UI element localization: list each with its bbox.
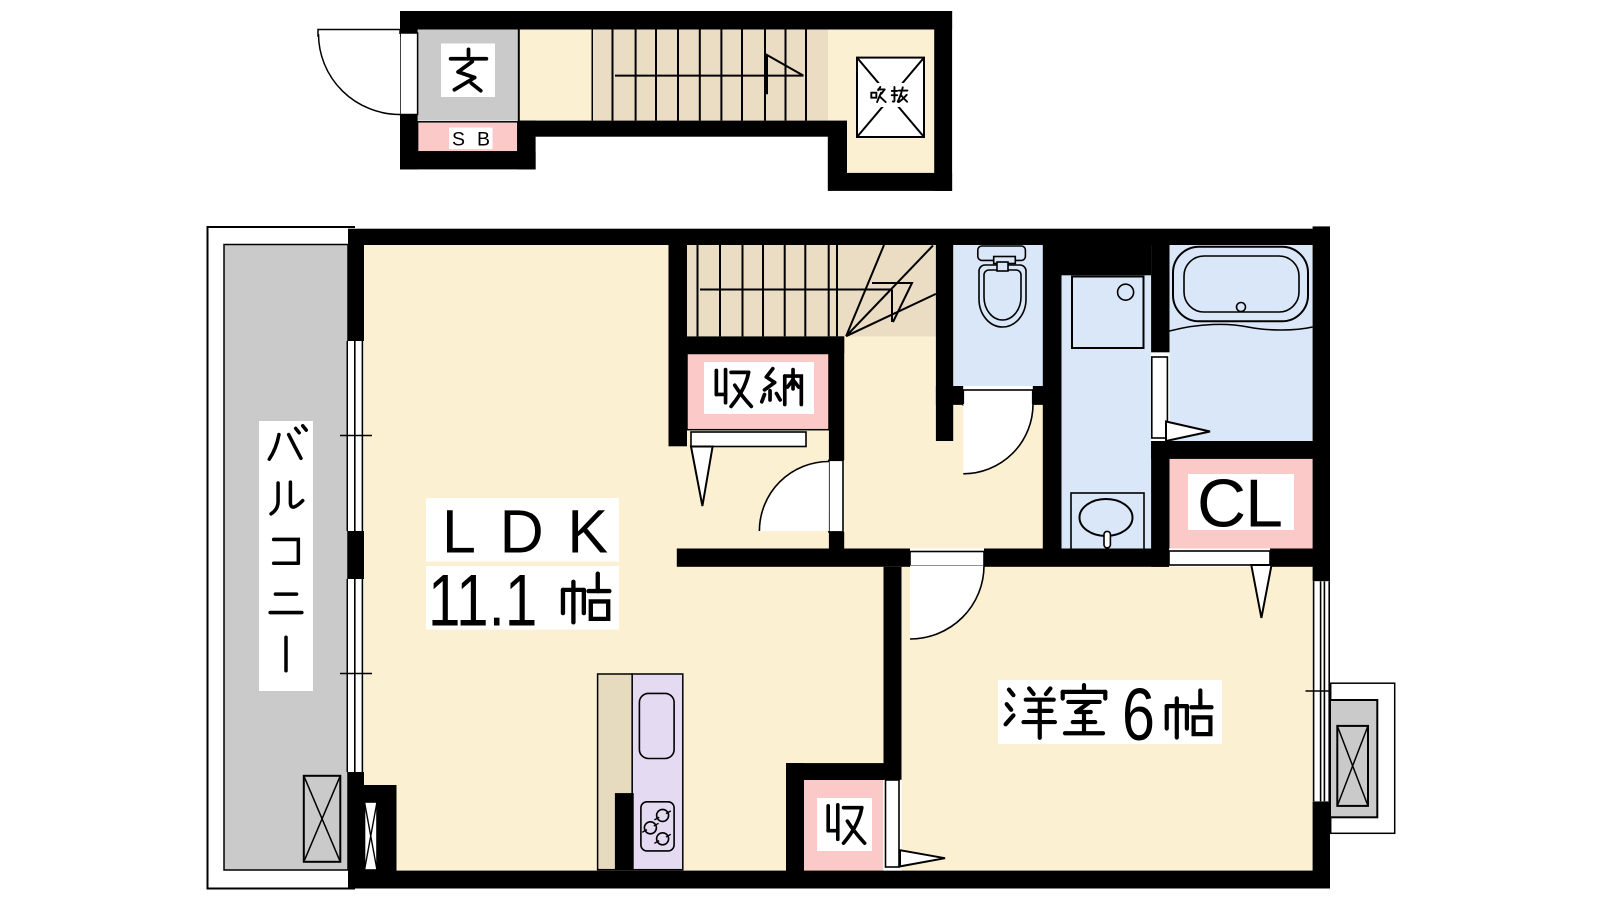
- svg-text:6: 6: [1122, 674, 1155, 757]
- svg-text:11.1: 11.1: [428, 560, 537, 642]
- svg-text:LDK: LDK: [442, 498, 608, 566]
- svg-text:CL: CL: [1197, 466, 1283, 542]
- svg-text:S B: S B: [452, 129, 490, 151]
